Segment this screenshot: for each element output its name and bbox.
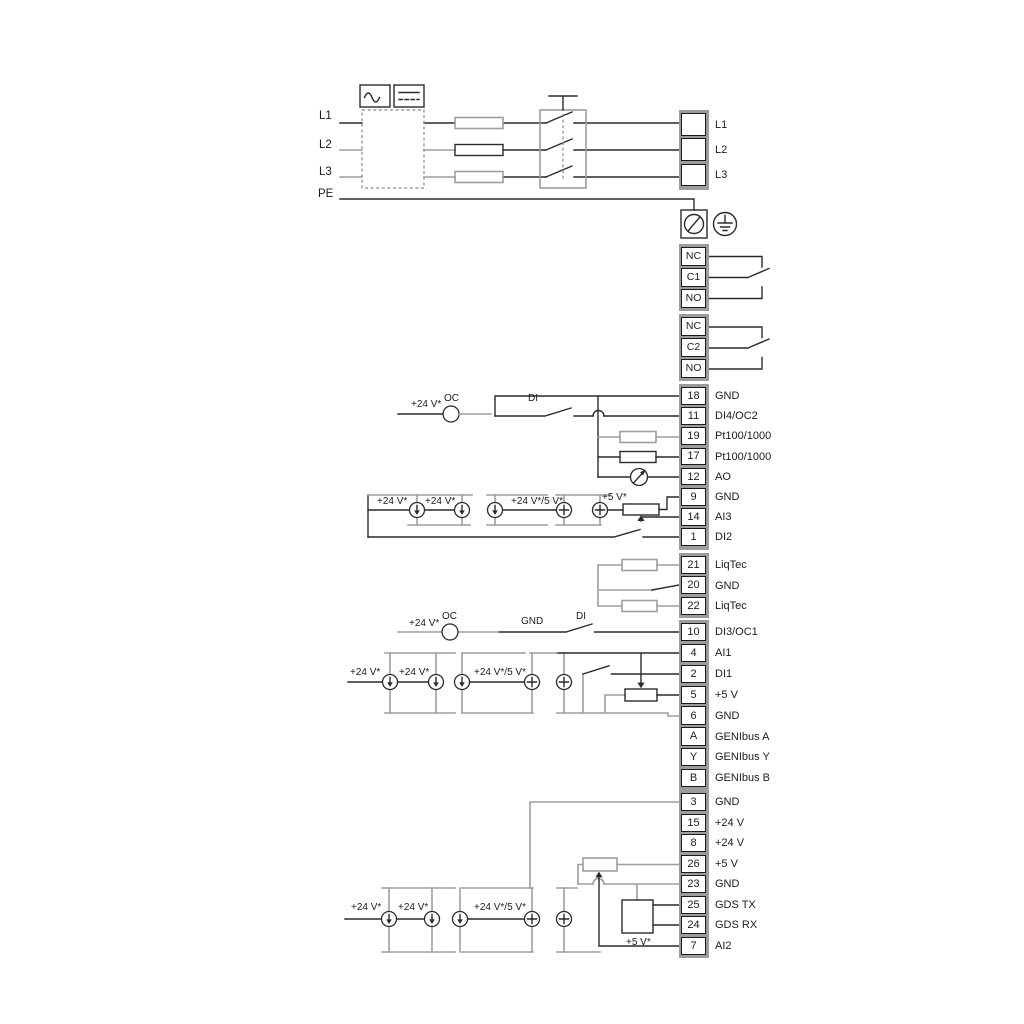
terminal-row: 25 GDS TX bbox=[680, 895, 820, 916]
terminal-label: +24 V bbox=[715, 817, 744, 829]
supply-annotation: +24 V*/5 V* bbox=[474, 667, 526, 678]
mains-switch bbox=[540, 96, 586, 188]
mains-terminal-cell bbox=[681, 164, 706, 187]
terminal-label: L2 bbox=[715, 144, 727, 156]
terminal-number: 9 bbox=[681, 488, 706, 506]
liqtec-section bbox=[598, 560, 682, 612]
terminal-number: B bbox=[681, 769, 706, 787]
terminal-label: AO bbox=[715, 471, 731, 483]
terminal-number: C1 bbox=[681, 268, 706, 287]
supply-annotation: +24 V* bbox=[377, 496, 407, 507]
terminal-row: 22 LiqTec bbox=[680, 596, 820, 616]
terminal-row: 6 GND bbox=[680, 705, 820, 726]
supply-annotation: +24 V* bbox=[398, 902, 428, 913]
fuse-l3 bbox=[455, 172, 503, 183]
terminal-number: NO bbox=[681, 359, 706, 378]
terminal-row: 20 GND bbox=[680, 575, 820, 595]
supply-annotation: +5 V* bbox=[602, 492, 627, 503]
terminal-label: DI2 bbox=[715, 531, 732, 543]
screw-terminal-icon bbox=[681, 210, 707, 238]
supply-annotation: +24 V* bbox=[350, 667, 380, 678]
terminal-number: A bbox=[681, 727, 706, 745]
terminal-row: 5 +5 V bbox=[680, 685, 820, 706]
terminal-number: 20 bbox=[681, 576, 706, 594]
terminal-row: L1 bbox=[680, 112, 820, 137]
di1-switch-contact bbox=[583, 666, 682, 674]
terminal-row: NC bbox=[680, 246, 820, 267]
terminal-label: +24 V bbox=[715, 837, 744, 849]
mains-terminal-cell bbox=[681, 113, 706, 136]
gds-sensor-box bbox=[622, 900, 653, 933]
terminal-number: 4 bbox=[681, 644, 706, 662]
di-annotation: DI bbox=[528, 393, 538, 404]
pt100-resistor bbox=[620, 452, 656, 463]
terminal-row: C2 bbox=[680, 337, 820, 358]
terminal-row: 26 +5 V bbox=[680, 854, 820, 875]
terminal-label: GDS TX bbox=[715, 899, 756, 911]
earth-icon bbox=[714, 213, 737, 236]
relay1-terminal-block: NC C1 NO bbox=[680, 246, 820, 309]
terminal-number: 23 bbox=[681, 875, 706, 893]
di-annotation: DI bbox=[576, 611, 586, 622]
terminal-number: 11 bbox=[681, 407, 706, 425]
terminal-group-io-genibus: 10 DI3/OC1 4 AI1 2 DI1 5 +5 V 6 GND A GE… bbox=[680, 622, 820, 789]
di4-switch-contact bbox=[495, 408, 682, 416]
terminal-row: 3 GND bbox=[680, 792, 820, 813]
terminal-label: Pt100/1000 bbox=[715, 430, 771, 442]
terminal-row: 21 LiqTec bbox=[680, 555, 820, 575]
terminal-number: 5 bbox=[681, 686, 706, 704]
supply-annotation: +24 V* bbox=[409, 618, 439, 629]
terminal-group-power-gds: 3 GND 15 +24 V 8 +24 V 26 +5 V 23 GND 25… bbox=[680, 792, 820, 956]
terminal-label: GDS RX bbox=[715, 919, 757, 931]
terminal-number: 21 bbox=[681, 556, 706, 574]
supply-annotation: +24 V* bbox=[351, 902, 381, 913]
terminal-number: 10 bbox=[681, 623, 706, 641]
terminal-label: DI3/OC1 bbox=[715, 626, 758, 638]
frequency-converter-box bbox=[362, 110, 424, 188]
oc-output-icon bbox=[442, 624, 458, 640]
terminal-row: C1 bbox=[680, 267, 820, 288]
terminal-row: 9 GND bbox=[680, 487, 820, 507]
potentiometer bbox=[583, 858, 617, 871]
supply-annotation: +24 V* bbox=[399, 667, 429, 678]
terminal-row: B GENIbus B bbox=[680, 768, 820, 789]
terminal-row: A GENIbus A bbox=[680, 726, 820, 747]
phase-label-l2: L2 bbox=[319, 139, 332, 151]
terminal-number: 26 bbox=[681, 855, 706, 873]
oc-annotation: OC bbox=[442, 611, 457, 622]
oc-annotation: OC bbox=[444, 393, 459, 404]
oc-output-icon bbox=[443, 406, 459, 422]
terminal-number: 15 bbox=[681, 814, 706, 832]
terminal-number: 7 bbox=[681, 937, 706, 955]
dc-symbol-icon bbox=[394, 85, 424, 107]
ac-symbol-icon bbox=[360, 85, 390, 107]
terminal-number: 8 bbox=[681, 834, 706, 852]
terminal-number: 25 bbox=[681, 896, 706, 914]
terminal-label: GND bbox=[715, 491, 739, 503]
potentiometer bbox=[623, 504, 659, 515]
liqtec-sensor-resistor bbox=[622, 560, 657, 571]
terminal-label: GENIbus A bbox=[715, 731, 769, 743]
terminal-label: GENIbus B bbox=[715, 772, 770, 784]
terminal-label: LiqTec bbox=[715, 600, 747, 612]
supply-annotation: +5 V* bbox=[626, 937, 651, 948]
terminal-group-a: 18 GND 11 DI4/OC2 19 Pt100/1000 17 Pt100… bbox=[680, 386, 820, 548]
terminal-label: LiqTec bbox=[715, 559, 747, 571]
terminal-number: NC bbox=[681, 247, 706, 266]
terminal-number: 22 bbox=[681, 597, 706, 615]
terminal-number: 2 bbox=[681, 665, 706, 683]
terminal-row: 23 GND bbox=[680, 874, 820, 895]
gnd-annotation: GND bbox=[521, 616, 543, 627]
terminal-label: DI4/OC2 bbox=[715, 410, 758, 422]
terminal-row: 4 AI1 bbox=[680, 643, 820, 664]
terminal-label: Pt100/1000 bbox=[715, 451, 771, 463]
terminal-number: 19 bbox=[681, 427, 706, 445]
terminal-row: NO bbox=[680, 288, 820, 309]
terminal-number: NC bbox=[681, 317, 706, 336]
potentiometer bbox=[625, 689, 657, 701]
terminal-row: Y GENIbus Y bbox=[680, 747, 820, 768]
terminal-number: 18 bbox=[681, 387, 706, 405]
terminal-row: 17 Pt100/1000 bbox=[680, 447, 820, 467]
fuse-l2 bbox=[455, 145, 503, 156]
terminal-label: GND bbox=[715, 580, 739, 592]
terminal-label: GND bbox=[715, 796, 739, 808]
terminal-label: GND bbox=[715, 878, 739, 890]
terminal-row: NO bbox=[680, 358, 820, 379]
terminal-number: 24 bbox=[681, 916, 706, 934]
terminal-row: 10 DI3/OC1 bbox=[680, 622, 820, 643]
terminal-number: 1 bbox=[681, 528, 706, 546]
terminal-row: 18 GND bbox=[680, 386, 820, 406]
terminal-row: 8 +24 V bbox=[680, 833, 820, 854]
analog-meter-icon bbox=[631, 469, 648, 486]
terminal-label: GENIbus Y bbox=[715, 751, 770, 763]
supply-annotation: +24 V*/5 V* bbox=[511, 496, 563, 507]
terminal-number: NO bbox=[681, 289, 706, 308]
terminal-label: AI2 bbox=[715, 940, 732, 952]
terminal-row: L3 bbox=[680, 163, 820, 188]
supply-annotation: +24 V* bbox=[425, 496, 455, 507]
terminal-label: +5 V bbox=[715, 689, 738, 701]
terminal-row: 12 AO bbox=[680, 467, 820, 487]
terminal-label: DI1 bbox=[715, 668, 732, 680]
terminal-group-liqtec: 21 LiqTec 20 GND 22 LiqTec bbox=[680, 555, 820, 616]
mains-terminal-cell bbox=[681, 138, 706, 161]
ai2-gds-section bbox=[345, 802, 682, 952]
terminal-row: 1 DI2 bbox=[680, 527, 820, 547]
terminal-number: 3 bbox=[681, 793, 706, 811]
terminal-number: C2 bbox=[681, 338, 706, 357]
terminal-row: 24 GDS RX bbox=[680, 915, 820, 936]
wiring-diagram: L1 L2 L3 PE L1 L2 L3 NC C1 NO NC C2 NO 1… bbox=[0, 0, 1024, 1024]
terminal-label: L3 bbox=[715, 169, 727, 181]
terminal-label: AI1 bbox=[715, 647, 732, 659]
relay2-terminal-block: NC C2 NO bbox=[680, 316, 820, 379]
terminal-label: GND bbox=[715, 390, 739, 402]
phase-label-l3: L3 bbox=[319, 166, 332, 178]
terminal-row: 7 AI2 bbox=[680, 936, 820, 957]
terminal-label: AI3 bbox=[715, 511, 732, 523]
terminal-row: 15 +24 V bbox=[680, 813, 820, 834]
liqtec-sensor-resistor bbox=[622, 601, 657, 612]
terminal-row: 11 DI4/OC2 bbox=[680, 406, 820, 426]
terminal-row: NC bbox=[680, 316, 820, 337]
pe-label: PE bbox=[318, 188, 333, 200]
terminal-row: 19 Pt100/1000 bbox=[680, 426, 820, 446]
terminal-row: 2 DI1 bbox=[680, 664, 820, 685]
terminal-number: 14 bbox=[681, 508, 706, 526]
terminal-number: 17 bbox=[681, 448, 706, 466]
terminal-row: 14 AI3 bbox=[680, 507, 820, 527]
ai1-wiring-section bbox=[348, 653, 682, 716]
terminal-label: L1 bbox=[715, 119, 727, 131]
mains-output-block: L1 L2 L3 bbox=[680, 112, 820, 188]
terminal-label: +5 V bbox=[715, 858, 738, 870]
pt100-resistor bbox=[620, 432, 656, 443]
supply-annotation: +24 V* bbox=[411, 399, 441, 410]
fuse-l1 bbox=[455, 118, 503, 129]
terminal-number: 6 bbox=[681, 706, 706, 724]
terminal-number: 12 bbox=[681, 468, 706, 486]
wiring-svg bbox=[0, 0, 1024, 1024]
pe-wire bbox=[340, 199, 694, 210]
terminal-row: L2 bbox=[680, 137, 820, 162]
phase-label-l1: L1 bbox=[319, 110, 332, 122]
mains-power-section bbox=[340, 85, 737, 238]
terminal-number: Y bbox=[681, 748, 706, 766]
di2-switch-contact bbox=[368, 530, 682, 538]
terminal-label: GND bbox=[715, 710, 739, 722]
supply-annotation: +24 V*/5 V* bbox=[474, 902, 526, 913]
